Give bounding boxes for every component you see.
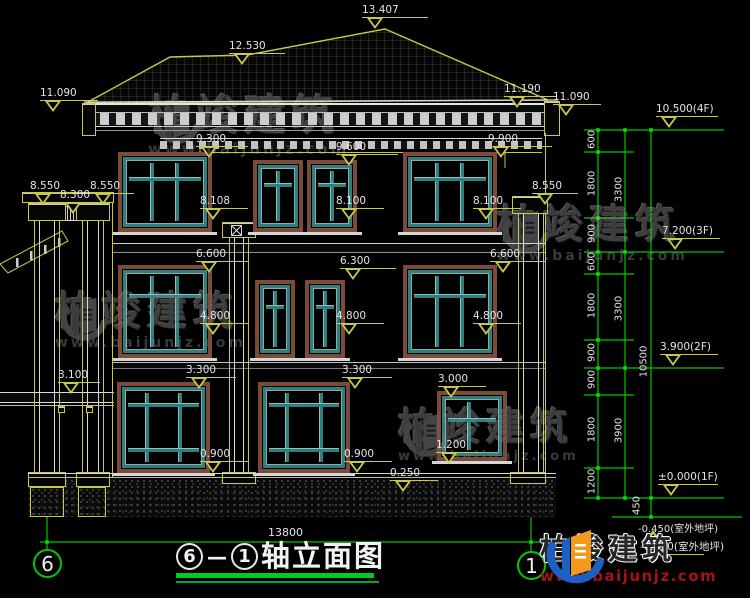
elevation-value: 3.000: [438, 373, 468, 385]
window: [255, 280, 295, 358]
elevation-value: 13.407: [362, 4, 399, 16]
elevation-value: 7.200(3F): [662, 225, 713, 237]
window-mullion-horizontal: [128, 403, 199, 407]
footing-b: [78, 487, 106, 517]
drawing-title: 6 — 1 轴立面图: [176, 541, 385, 572]
elevation-label: 0.900: [200, 449, 248, 473]
elevation-label: 11.090: [553, 92, 601, 116]
window: [258, 382, 350, 473]
elevation-triangle-icon: [65, 203, 81, 214]
elevation-value: 8.550: [30, 180, 60, 192]
elevation-triangle-icon: [349, 462, 365, 473]
elevation-label: 8.100: [336, 196, 384, 220]
window: [403, 152, 497, 232]
window-frame: [260, 285, 290, 353]
elevation-value: 6.600: [196, 248, 226, 260]
title-axis-right: 1: [231, 543, 258, 570]
wall-edge-left: [112, 198, 113, 478]
chain-dimension-value: 600: [587, 117, 598, 163]
elevation-label: 8.100: [473, 196, 521, 220]
floor-level-label: 7.200(3F): [662, 226, 720, 250]
window-mullion-horizontal: [266, 305, 284, 309]
elevation-value: 9.300: [196, 133, 226, 145]
porch-bracket-b: [86, 406, 93, 413]
floor-level-label: ±0.000(1F): [658, 472, 718, 496]
elevation-label: 6.300: [340, 256, 396, 280]
porch-slab-line: [0, 405, 114, 406]
elevation-label: 8.550: [532, 181, 578, 205]
axis-bubble-6: 6: [33, 549, 62, 578]
baijun-logo: 柏竣建筑 www.baijunjz.com: [540, 524, 750, 596]
elevation-label: 13.407: [362, 5, 428, 29]
window-sill: [300, 358, 350, 361]
chain-dimension-value: 1200: [587, 459, 598, 505]
chain-dimension-value: 600: [587, 239, 598, 285]
elevation-triangle-icon: [341, 155, 357, 166]
chain-dimension-value: 1800: [587, 161, 598, 207]
elevation-value: 11.090: [40, 87, 77, 99]
elevation-triangle-icon: [495, 262, 511, 273]
elevation-triangle-icon: [667, 239, 683, 250]
elevation-label: 9.300: [196, 134, 248, 158]
elevation-label: 0.900: [344, 449, 392, 473]
elevation-label: 4.800: [473, 311, 521, 335]
window-frame: [123, 270, 207, 353]
elevation-value: ±0.000(1F): [658, 471, 718, 483]
window-mullion-horizontal: [316, 305, 334, 309]
title-text: 轴立面图: [261, 541, 385, 572]
pilaster-shaft: [229, 238, 249, 472]
elevation-label: 4.800: [336, 311, 384, 335]
elevation-value: 4.800: [200, 310, 230, 322]
elevation-value: 8.100: [336, 195, 366, 207]
chain-dimension-value: 3300: [614, 167, 625, 213]
window-mullion-horizontal: [129, 294, 201, 298]
elevation-triangle-icon: [478, 324, 494, 335]
window-mullion-vertical: [276, 171, 280, 221]
elevation-triangle-icon: [341, 324, 357, 335]
elevation-value: 0.900: [344, 448, 374, 460]
window-mullion-horizontal: [269, 403, 339, 407]
porch-column-a: [34, 221, 60, 472]
elevation-triangle-icon: [95, 194, 111, 205]
elevation-value: 8.108: [200, 195, 230, 207]
porch-bracket-a: [58, 406, 65, 413]
elevation-value: 6.300: [340, 255, 370, 267]
elevation-value: 8.550: [532, 180, 562, 192]
eave-fascia: [84, 103, 558, 113]
elevation-triangle-icon: [345, 269, 361, 280]
title-underline-thin: [176, 581, 379, 583]
floor-band-3f: [112, 243, 546, 253]
elevation-label: 11.090: [40, 88, 98, 112]
elevation-triangle-icon: [493, 147, 509, 158]
elevation-value: 8.100: [473, 195, 503, 207]
pilaster-box-mark: [231, 225, 242, 236]
elevation-value: 3.900(2F): [660, 341, 711, 353]
elevation-value: 12.530: [229, 40, 266, 52]
elevation-triangle-icon: [395, 481, 411, 492]
window-mullion-horizontal: [414, 177, 486, 181]
elevation-value: 10.500(4F): [656, 103, 714, 115]
title-underline-thick: [176, 573, 374, 578]
elevation-triangle-icon: [63, 383, 79, 394]
chain-dimension-value: 900: [587, 357, 598, 403]
elevation-triangle-icon: [663, 485, 679, 496]
window-mullion-vertical: [330, 171, 334, 221]
title-dash: —: [207, 545, 227, 569]
elevation-triangle-icon: [201, 147, 217, 158]
window-mullion-vertical: [175, 276, 179, 347]
elevation-label: 1.200: [436, 440, 482, 464]
elevation-triangle-icon: [205, 209, 221, 220]
elevation-triangle-icon: [201, 262, 217, 273]
window-mullion-vertical: [150, 276, 154, 347]
elevation-value: 0.250: [390, 467, 420, 479]
window-mullion-vertical: [435, 276, 439, 347]
elevation-triangle-icon: [234, 54, 250, 65]
elevation-triangle-icon: [661, 117, 677, 128]
elevation-triangle-icon: [367, 18, 383, 29]
window-frame: [123, 157, 207, 227]
window-frame: [263, 387, 345, 468]
elevation-triangle-icon: [347, 378, 363, 389]
elevation-value: 1.200: [436, 439, 466, 451]
window-mullion-vertical: [435, 163, 439, 221]
window: [118, 265, 212, 358]
elevation-label: 3.300: [342, 365, 392, 389]
elevation-triangle-icon: [341, 209, 357, 220]
window-mullion-vertical: [323, 291, 327, 347]
porch-column-b: [82, 221, 104, 472]
floor-level-label: 10.500(4F): [656, 104, 718, 128]
overall-dimension: 13800: [268, 526, 303, 539]
elevation-triangle-icon: [443, 387, 459, 398]
window-mullion-vertical: [460, 163, 464, 221]
elevation-triangle-icon: [205, 324, 221, 335]
cornice-line-2: [88, 130, 554, 131]
window-mullion-vertical: [175, 163, 179, 221]
window-mullion-vertical: [150, 163, 154, 221]
window-mullion-horizontal: [129, 177, 201, 181]
window-sill: [112, 473, 215, 476]
elevation-value: 4.800: [336, 310, 366, 322]
floor-band-2f: [112, 362, 546, 369]
elevation-triangle-icon: [665, 355, 681, 366]
elevation-triangle-icon: [537, 194, 553, 205]
elevation-triangle-icon: [441, 453, 457, 464]
foundation-top-line: [28, 477, 556, 478]
chain-dimension-value: 10500: [639, 339, 650, 385]
elevation-label: 8.108: [200, 196, 248, 220]
elevation-triangle-icon: [478, 209, 494, 220]
chain-dimension-value: 450: [632, 483, 643, 529]
cad-elevation-drawing: 13.40712.53011.09011.19011.0909.3009.600…: [0, 0, 750, 598]
elevation-value: 9.900: [488, 133, 518, 145]
window-mullion-horizontal: [264, 183, 292, 187]
elevation-label: 11.190: [504, 84, 556, 108]
elevation-label: 9.600: [336, 142, 398, 166]
elevation-value: 3.300: [186, 364, 216, 376]
elevation-value: 11.190: [504, 83, 541, 95]
window-mullion-horizontal: [414, 294, 486, 298]
window-sill: [248, 232, 308, 235]
chain-dimension-value: 3900: [614, 408, 625, 454]
elevation-triangle-icon: [205, 462, 221, 473]
window-frame: [122, 387, 205, 468]
chain-dimension-value: 3300: [614, 286, 625, 332]
cornice-line: [84, 126, 558, 127]
elevation-value: 9.600: [336, 141, 366, 153]
window-mullion-horizontal: [269, 448, 339, 452]
elevation-label: 3.000: [438, 374, 486, 398]
elevation-label: 12.530: [229, 41, 285, 65]
window-mullion-vertical: [273, 291, 277, 347]
window-mullion-horizontal: [318, 183, 346, 187]
elevation-triangle-icon: [35, 194, 51, 205]
window-sill: [253, 473, 355, 476]
window-sill: [398, 358, 502, 361]
floor-level-label: 3.900(2F): [660, 342, 718, 366]
cornice-dentils: [84, 113, 558, 125]
footing-a: [30, 487, 64, 517]
chain-dimension-value: 1800: [587, 407, 598, 453]
elevation-label: 6.600: [490, 249, 546, 273]
window-mullion-horizontal: [128, 448, 199, 452]
elevation-value: 11.090: [553, 91, 590, 103]
elevation-label: 3.300: [186, 365, 236, 389]
elevation-label: 9.900: [488, 134, 552, 158]
elevation-triangle-icon: [558, 105, 574, 116]
elevation-label: 6.600: [196, 249, 248, 273]
elevation-triangle-icon: [191, 378, 207, 389]
elevation-label: 8.550: [90, 181, 134, 205]
elevation-label: 4.800: [200, 311, 248, 335]
elevation-value: 3.100: [58, 369, 88, 381]
elevation-triangle-icon: [509, 97, 525, 108]
window-sill: [398, 232, 502, 235]
porch-column-a-base: [28, 472, 66, 487]
porch-column-b-base: [76, 472, 110, 487]
elevation-label: 3.100: [58, 370, 100, 394]
window-frame: [258, 165, 298, 227]
title-axis-left: 6: [176, 543, 203, 570]
baijun-logo-icon: [540, 524, 604, 594]
elevation-label: 0.250: [390, 468, 438, 492]
window: [117, 382, 210, 473]
window-sill: [302, 232, 362, 235]
elevation-triangle-icon: [45, 101, 61, 112]
elevation-value: 0.900: [200, 448, 230, 460]
window-mullion-horizontal: [448, 418, 496, 422]
elevation-value: 4.800: [473, 310, 503, 322]
chain-dimension-value: 1800: [587, 283, 598, 329]
window: [253, 160, 303, 232]
window-sill: [113, 232, 217, 235]
elevation-value: 6.600: [490, 248, 520, 260]
elevation-value: 8.300: [60, 189, 90, 201]
window-sill: [113, 358, 217, 361]
window-sill: [250, 358, 300, 361]
elevation-value: 3.300: [342, 364, 372, 376]
window-mullion-vertical: [460, 276, 464, 347]
elevation-value: 8.550: [90, 180, 120, 192]
